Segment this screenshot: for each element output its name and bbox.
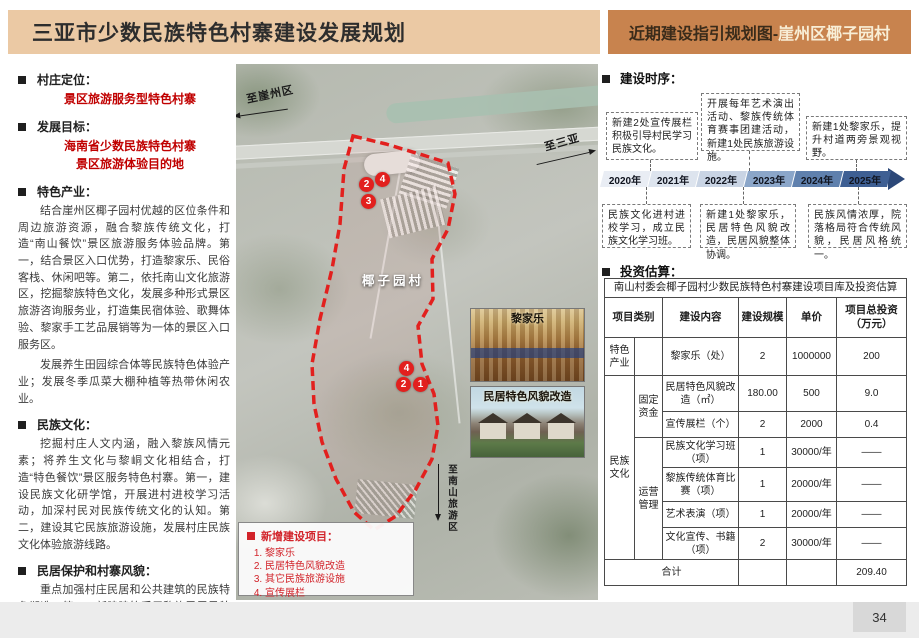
cell-unit-price: 30000/年 xyxy=(787,528,837,560)
subtitle-prefix: 近期建设指引规划图- xyxy=(629,20,778,44)
footer-band xyxy=(0,602,919,638)
cell-subcategory: 固定资金 xyxy=(635,376,663,438)
timeline-note-top: 新建2处宣传展栏积极引导村民学习民族文化。 xyxy=(606,112,698,160)
cell-content: 黎家乐（处） xyxy=(663,338,739,376)
cell-unit-price: 1000000 xyxy=(787,338,837,376)
road-label-to-nanshan: 至南山旅游区 xyxy=(444,464,458,533)
map-marker: 1 xyxy=(413,377,428,392)
cell-scale: 180.00 xyxy=(739,376,787,412)
legend-item: 其它民族旅游设施 xyxy=(265,573,405,586)
page-number: 34 xyxy=(853,602,906,632)
cell-scale: 2 xyxy=(739,412,787,438)
section-heading-culture: 民族文化： xyxy=(18,416,230,433)
section-heading-label: 民居保护和村寨风貌： xyxy=(37,562,157,579)
cell-unit-price: 20000/年 xyxy=(787,502,837,528)
table-row: 民族文化 固定资金 民居特色风貌改造（㎡） 180.00 500 9.0 xyxy=(605,376,907,412)
cell-total: —— xyxy=(837,502,907,528)
header-subtitle-bar: 近期建设指引规划图-崖州区椰子园村 xyxy=(608,10,911,54)
timeline-segment: 2023年 xyxy=(744,171,795,187)
bullet-square-icon xyxy=(18,188,26,196)
arrow-south-icon xyxy=(438,464,439,514)
section-heading-label: 建设时序： xyxy=(620,68,683,87)
col-header: 建设规模 xyxy=(739,298,787,338)
cell-total: 9.0 xyxy=(837,376,907,412)
cell-scale: 1 xyxy=(739,438,787,468)
house-shape xyxy=(480,423,506,439)
goal-line-1: 海南省少数民族特色村寨 xyxy=(18,137,230,156)
map-marker: 4 xyxy=(399,361,414,376)
cell-unit-price: 500 xyxy=(787,376,837,412)
cell-content: 艺术表演（项） xyxy=(663,502,739,528)
section-heading-label: 民族文化： xyxy=(37,416,97,433)
cell-scale: 2 xyxy=(739,338,787,376)
red-square-icon xyxy=(247,532,255,540)
bullet-square-icon xyxy=(18,421,26,429)
col-header: 单价 xyxy=(787,298,837,338)
cell-total: 0.4 xyxy=(837,412,907,438)
col-header: 建设内容 xyxy=(663,298,739,338)
timeline-note-bottom: 民族风情浓厚，院落格局符合传统风貌，民居风格统一。 xyxy=(808,204,907,248)
connector-line xyxy=(743,187,744,204)
cell-category: 特色产业 xyxy=(605,338,635,376)
map-marker: 4 xyxy=(375,172,390,187)
page-title: 三亚市少数民族特色村寨建设发展规划 xyxy=(32,17,406,47)
section-heading-goal: 发展目标： xyxy=(18,118,230,135)
photo-label: 民居特色风貌改造 xyxy=(471,388,584,404)
cell-subcategory: 运营管理 xyxy=(635,438,663,560)
village-name-label: 椰子园村 xyxy=(362,270,424,289)
timeline-segment: 2025年 xyxy=(840,171,891,187)
legend-title: 新增建设项目： xyxy=(261,528,338,544)
cell-content: 宣传展栏（个） xyxy=(663,412,739,438)
investment-table: 南山村委会椰子园村少数民族特色村寨建设项目库及投资估算 项目类别 建设内容 建设… xyxy=(604,278,907,586)
bullet-square-icon xyxy=(602,268,610,276)
cell-total: —— xyxy=(837,528,907,560)
cell-scale: 1 xyxy=(739,468,787,502)
table-row: 运营管理 民族文化学习班（项） 1 30000/年 —— xyxy=(605,438,907,468)
photo-label: 黎家乐 xyxy=(471,310,584,326)
map-marker: 2 xyxy=(396,377,411,392)
satellite-map: 至崖州区 至三亚 至南山旅游区 椰子园村 2 4 3 4 2 1 黎家乐 民居特… xyxy=(236,64,598,600)
bullet-square-icon xyxy=(18,123,26,131)
table-row: 特色产业 黎家乐（处） 2 1000000 200 xyxy=(605,338,907,376)
connector-line xyxy=(646,187,647,204)
section-heading-appearance: 民居保护和村寨风貌： xyxy=(18,562,230,579)
cell-total: —— xyxy=(837,438,907,468)
connector-line xyxy=(749,151,750,171)
timeline-note-top: 新建1处黎家乐，提升村道两旁景观视野。 xyxy=(806,116,907,160)
left-text-panel: 村庄定位： 景区旅游服务型特色村寨 发展目标： 海南省少数民族特色村寨 景区旅游… xyxy=(18,62,230,638)
cell-category: 民族文化 xyxy=(605,376,635,560)
legend-list: 黎家乐 民居特色风貌改造 其它民族旅游设施 宣传展栏 xyxy=(265,547,405,600)
cell-total: 200 xyxy=(837,338,907,376)
map-marker: 2 xyxy=(359,177,374,192)
timeline-note-bottom: 新建1处黎家乐，民居特色风貌改造，民居风貌整体协调。 xyxy=(700,204,796,248)
col-header: 项目类别 xyxy=(605,298,663,338)
industry-paragraph-1: 结合崖州区椰子园村优越的区位条件和周边旅游资源，融合黎族传统文化，打造“南山餐饮… xyxy=(18,203,230,353)
house-shape xyxy=(548,423,574,439)
map-marker: 3 xyxy=(361,194,376,209)
timeline-segment: 2021年 xyxy=(648,171,699,187)
cell-total: —— xyxy=(837,468,907,502)
section-heading-schedule: 建设时序： xyxy=(602,68,683,87)
section-heading-industry: 特色产业： xyxy=(18,183,230,200)
plan-page: 三亚市少数民族特色村寨建设发展规划 近期建设指引规划图-崖州区椰子园村 村庄定位… xyxy=(0,0,919,638)
cell-unit-price: 2000 xyxy=(787,412,837,438)
bullet-square-icon xyxy=(18,567,26,575)
bullet-square-icon xyxy=(18,76,26,84)
cell-subcategory xyxy=(635,338,663,376)
section-heading-label: 特色产业： xyxy=(37,183,97,200)
timeline-segment: 2024年 xyxy=(792,171,843,187)
table-total-row: 合计 209.40 xyxy=(605,560,907,586)
culture-paragraph: 挖掘村庄人文内涵，融入黎族风情元素；将养生文化与黎峒文化相结合，打造“特色餐饮”… xyxy=(18,436,230,553)
cell-total-value: 209.40 xyxy=(837,560,907,586)
cell-scale: 2 xyxy=(739,528,787,560)
map-legend: 新增建设项目： 黎家乐 民居特色风貌改造 其它民族旅游设施 宣传展栏 xyxy=(238,522,414,596)
photo-lijiale: 黎家乐 xyxy=(470,308,585,382)
timeline-axis: 2020年 2021年 2022年 2023年 2024年 2025年 xyxy=(602,171,905,187)
subtitle-village: 崖州区椰子园村 xyxy=(778,20,890,44)
connector-line xyxy=(856,160,857,171)
goal-line-2: 景区旅游体验目的地 xyxy=(18,155,230,174)
timeline-segment: 2022年 xyxy=(696,171,747,187)
cell-unit-price: 20000/年 xyxy=(787,468,837,502)
cell-content: 文化宣传、书籍（项） xyxy=(663,528,739,560)
legend-item: 黎家乐 xyxy=(265,547,405,560)
legend-title-row: 新增建设项目： xyxy=(247,528,405,544)
cell-empty xyxy=(739,560,787,586)
cell-total-label: 合计 xyxy=(605,560,739,586)
positioning-value: 景区旅游服务型特色村寨 xyxy=(18,90,230,109)
col-header: 项目总投资（万元） xyxy=(837,298,907,338)
cell-content: 民族文化学习班（项） xyxy=(663,438,739,468)
timeline-note-top: 开展每年艺术演出活动、黎族传统体育赛事团建活动，新建1处民族旅游设施。 xyxy=(701,93,800,151)
timeline-note-bottom: 民族文化进村进校学习，成立民族文化学习班。 xyxy=(602,204,691,248)
legend-item: 民居特色风貌改造 xyxy=(265,560,405,573)
photo-dwelling-renovation: 民居特色风貌改造 xyxy=(470,386,585,458)
connector-line xyxy=(650,160,651,171)
cell-content: 民居特色风貌改造（㎡） xyxy=(663,376,739,412)
bullet-square-icon xyxy=(602,75,610,83)
cell-unit-price: 30000/年 xyxy=(787,438,837,468)
cell-scale: 1 xyxy=(739,502,787,528)
section-heading-label: 村庄定位： xyxy=(37,71,97,88)
photo-texture xyxy=(471,348,584,358)
connector-line xyxy=(858,187,859,204)
legend-item: 宣传展栏 xyxy=(265,587,405,600)
house-shape xyxy=(514,423,540,439)
timeline-segment: 2020年 xyxy=(600,171,651,187)
industry-paragraph-2: 发展养生田园综合体等民族特色体验产业；发展冬季瓜菜大棚种植等热带休闲农业。 xyxy=(18,357,230,407)
section-heading-positioning: 村庄定位： xyxy=(18,71,230,88)
table-title: 南山村委会椰子园村少数民族特色村寨建设项目库及投资估算 xyxy=(605,279,907,298)
cell-content: 黎族传统体育比赛（项） xyxy=(663,468,739,502)
cell-empty xyxy=(787,560,837,586)
section-heading-label: 发展目标： xyxy=(37,118,97,135)
header-title-bar: 三亚市少数民族特色村寨建设发展规划 xyxy=(8,10,600,54)
